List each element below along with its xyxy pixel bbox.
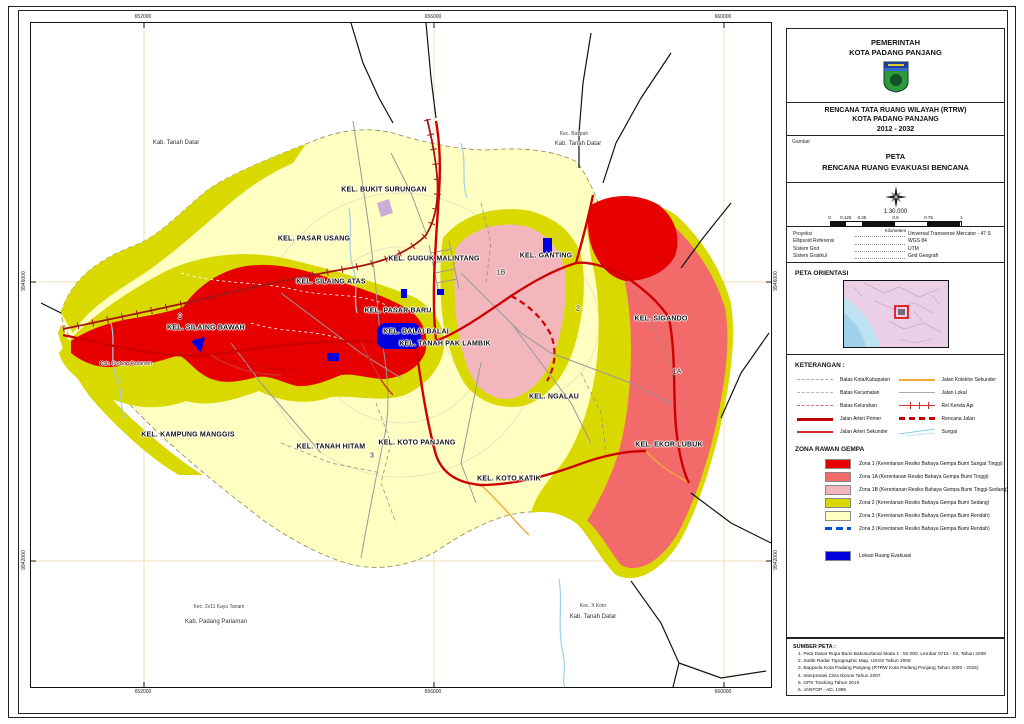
projection-row: Sistem GratikulGrid Geografi [793, 253, 998, 260]
zone-swatch [825, 527, 851, 530]
figure-label: Gambar [792, 139, 810, 145]
orientation-inset-map [843, 280, 949, 348]
arteri-primer-symbol [795, 414, 835, 424]
legend-block: KETERANGAN : Batas Kota/KabupatenBatas K… [787, 355, 1004, 638]
graticule-label: 660000 [715, 689, 732, 695]
hazard-zone-item: Zona 1A (Kerentanan Resiko Bahaya Gempa … [825, 470, 996, 483]
legend-item: Batas Kota/Kabupaten [795, 373, 893, 386]
graticule-label: 652000 [135, 14, 152, 20]
graticule-label: 9946000 [773, 271, 779, 290]
hazard-zone-item: Zona 3 (Kerentanan Resiko Bahaya Gempa B… [825, 509, 996, 522]
map-drawing [31, 23, 771, 687]
batas-kel-symbol [795, 401, 835, 411]
scale-tick: 0.5 [892, 215, 898, 220]
government-line2: KOTA PADANG PANJANG [793, 48, 998, 57]
zone-swatch [825, 485, 851, 495]
legend-item: Sungai [897, 425, 996, 438]
legend-title: KETERANGAN : [795, 362, 998, 369]
map-sources-block: SUMBER PETA : 1. Peta Dasar Rupa Bumi Ba… [787, 638, 1004, 695]
graticule-label: 656000 [425, 14, 442, 20]
rtrw-line3: 2012 - 2032 [793, 125, 998, 134]
map-title-line1: PETA [793, 152, 998, 163]
source-item: 6. JANTOP - AD, 1989 [793, 687, 998, 694]
map-canvas: Kab. Tanah DatarKec. BatipuhKab. Tanah D… [30, 22, 772, 688]
projection-info: ProyeksiUniversal Transverse Mercator - … [787, 227, 1004, 263]
scale-tick: 0.25 [858, 215, 867, 220]
hazard-zone-item: Lokasi Ruang Evakuasi [825, 549, 996, 562]
zone-swatch [825, 511, 851, 521]
government-line1: PEMERINTAH [793, 38, 998, 47]
source-item: 4. Interpretasi Citra Ikonos Tahun 2007 [793, 673, 998, 680]
zone-swatch [825, 472, 851, 482]
legend-item: Jalan Kolektor Sekunder [897, 373, 996, 386]
hazard-zone-item: Zona 1 (Kerentanan Resiko Bahaya Gempa B… [825, 457, 996, 470]
city-crest-logo [883, 61, 909, 93]
hazard-zone-item: Zona 3 (Kerentanan Resiko Bahaya Gempa B… [825, 522, 996, 535]
hazard-zone-item: Zona 1B (Kerentanan Resiko Bahaya Gempa … [825, 483, 996, 496]
lokal-symbol [897, 388, 937, 398]
sungai-symbol [897, 427, 937, 437]
projection-row: Ellipsoid ReferensiWGS 84 [793, 238, 998, 245]
batas-kota-symbol [795, 375, 835, 385]
legend-item: Rencana Jalan [897, 412, 996, 425]
rtrw-line1: RENCANA TATA RUANG WILAYAH (RTRW) [793, 106, 998, 115]
map-legend-panel: PEMERINTAH KOTA PADANG PANJANG RENCANA T… [786, 28, 1005, 696]
scale-tick: 0.75 [924, 215, 933, 220]
hazard-zone-title: ZONA RAWAN GEMPA [795, 446, 998, 453]
figure-title-block: Gambar PETA RENCANA RUANG EVAKUASI BENCA… [787, 136, 1004, 183]
orientation-title: PETA ORIENTASI [795, 270, 998, 277]
source-item: 5. GPS Tracking Tahun 2010 [793, 680, 998, 687]
scale-tick: 1 [960, 215, 963, 220]
hazard-zone-item: Zona 2 (Kerentanan Resiko Bahaya Gempa B… [825, 496, 996, 509]
rencana-symbol [897, 414, 937, 424]
zone-swatch [825, 551, 851, 561]
zone-swatch [825, 498, 851, 508]
projection-row: Sistem GridUTM [793, 246, 998, 253]
arteri-sekunder-symbol [795, 427, 835, 437]
sources-title: SUMBER PETA : [793, 644, 998, 650]
zone-swatch [825, 459, 851, 469]
scale-tick: 0.125 [840, 215, 851, 220]
graticule-label: 660000 [715, 14, 732, 20]
graticule-label: 9942000 [773, 550, 779, 569]
graticule-label: 656000 [425, 689, 442, 695]
legend-item: Jalan Arteri Sekunder [795, 425, 893, 438]
legend-item: Rel Kereta Api [897, 399, 996, 412]
compass-rose-icon [885, 186, 907, 208]
scale-tick: 0 [828, 215, 831, 220]
source-item: 2. Suttle Radar Topographic Map, USGS Ta… [793, 658, 998, 665]
legend-item: Jalan Arteri Primer [795, 412, 893, 425]
map-title-line2: RENCANA RUANG EVAKUASI BENCANA [793, 163, 998, 174]
legend-item: Jalan Lokal [897, 386, 996, 399]
graticule-label: 9942000 [21, 550, 27, 569]
panel-header: PEMERINTAH KOTA PADANG PANJANG [787, 29, 1004, 103]
orientation-block: PETA ORIENTASI [787, 263, 1004, 355]
projection-row: ProyeksiUniversal Transverse Mercator - … [793, 231, 998, 238]
legend-item: Batas Kecamatan [795, 386, 893, 399]
rtrw-line2: KOTA PADANG PANJANG [793, 115, 998, 124]
rel-symbol [897, 401, 937, 411]
graticule-label: 652000 [135, 689, 152, 695]
compass-scale-block: 1:30.000 00.1250.250.50.751 Kilometers [787, 183, 1004, 227]
legend-item: Batas Kelurahan [795, 399, 893, 412]
map-title-block: RENCANA TATA RUANG WILAYAH (RTRW) KOTA P… [787, 103, 1004, 136]
batas-kec-symbol [795, 388, 835, 398]
kolektor-symbol [897, 375, 937, 385]
source-item: 3. Bappeda Kota Padang Panjang (RTRW Kot… [793, 665, 998, 672]
graticule-label: 9946000 [21, 271, 27, 290]
source-item: 1. Peta Dasar Rupa Bumi Bakosurtanal Ska… [793, 651, 998, 658]
